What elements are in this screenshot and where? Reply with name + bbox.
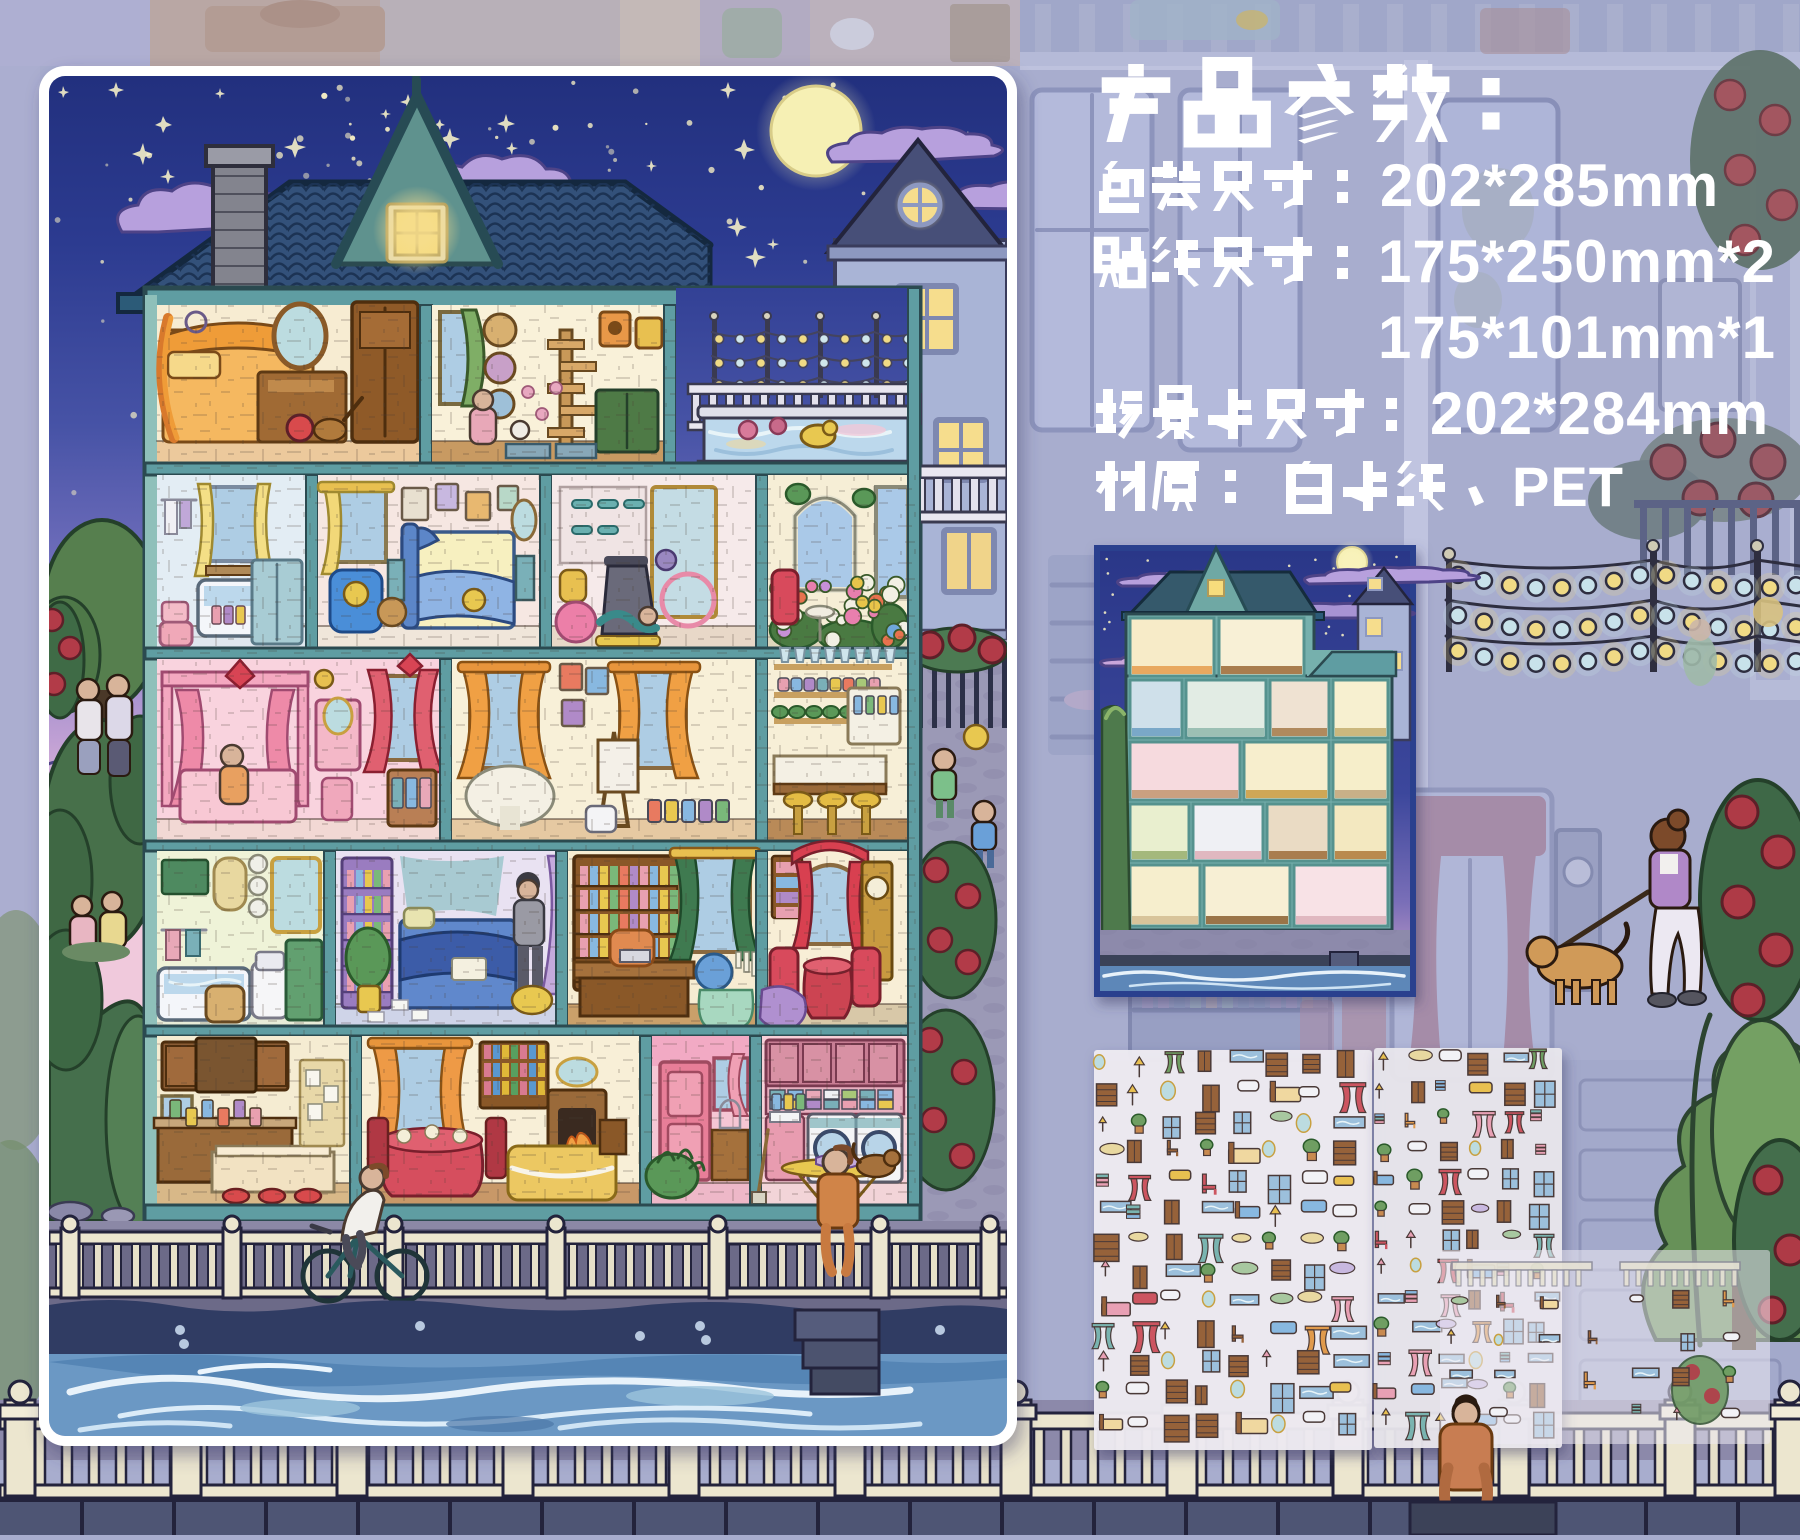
svg-text:175*101mm*1: 175*101mm*1 [1378,304,1776,371]
svg-text:202*284mm: 202*284mm [1430,380,1769,447]
svg-text:175*250mm*2: 175*250mm*2 [1378,228,1776,295]
svg-text:202*285mm: 202*285mm [1380,152,1719,219]
svg-text:PET: PET [1512,455,1624,518]
